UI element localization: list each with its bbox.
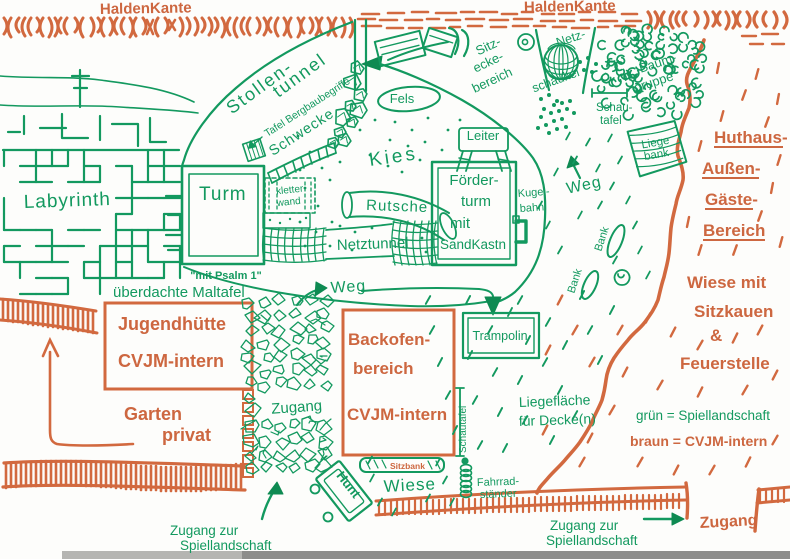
svg-text:HaldenKante: HaldenKante bbox=[524, 0, 616, 16]
svg-text:privat: privat bbox=[162, 425, 211, 445]
svg-text:Spiellandschaft: Spiellandschaft bbox=[546, 533, 638, 548]
svg-text:überdachte Maltafel: überdachte Maltafel bbox=[113, 284, 245, 301]
svg-text:turm: turm bbox=[461, 193, 491, 210]
svg-text:Weg: Weg bbox=[330, 278, 367, 297]
svg-text:Fels: Fels bbox=[390, 91, 415, 106]
svg-text:Kugel-: Kugel- bbox=[517, 186, 550, 200]
svg-text:Liegefläche: Liegefläche bbox=[519, 392, 591, 410]
svg-text:Leiter: Leiter bbox=[467, 128, 500, 143]
svg-text:Netztunnel: Netztunnel bbox=[337, 235, 409, 254]
svg-text:Wiese: Wiese bbox=[383, 474, 436, 496]
svg-text:Spiellandschaft: Spiellandschaft bbox=[180, 538, 272, 553]
svg-text:Sitzbank: Sitzbank bbox=[390, 461, 425, 471]
svg-text:SandKastn: SandKastn bbox=[440, 237, 506, 252]
svg-text:Garten: Garten bbox=[124, 404, 182, 424]
svg-text:Feuerstelle: Feuerstelle bbox=[680, 354, 770, 373]
svg-text:Backofen-: Backofen- bbox=[348, 330, 430, 349]
svg-text:Zugang: Zugang bbox=[271, 397, 323, 418]
svg-text:Jugendhütte: Jugendhütte bbox=[118, 314, 226, 334]
svg-text:Rutsche: Rutsche bbox=[366, 197, 429, 216]
svg-text:Sitzkauen: Sitzkauen bbox=[694, 302, 773, 321]
svg-text:Zugang zur: Zugang zur bbox=[170, 523, 239, 538]
svg-text:Huthaus-: Huthaus- bbox=[714, 128, 788, 147]
svg-text:für Decke(n): für Decke(n) bbox=[519, 410, 597, 429]
svg-text:grün = Spiellandschaft: grün = Spiellandschaft bbox=[636, 408, 770, 423]
svg-text:Schau-: Schau- bbox=[596, 102, 633, 114]
svg-text:HaldenKante: HaldenKante bbox=[100, 0, 192, 18]
svg-text:CVJM-intern: CVJM-intern bbox=[118, 351, 224, 371]
svg-text:Gäste-: Gäste- bbox=[705, 190, 758, 209]
svg-text:&: & bbox=[710, 326, 722, 345]
svg-text:Außen-: Außen- bbox=[702, 159, 761, 178]
svg-text:"mit Psalm 1": "mit Psalm 1" bbox=[190, 270, 262, 282]
svg-text:Schautafel: Schautafel bbox=[458, 406, 469, 453]
svg-text:Förder-: Förder- bbox=[449, 172, 498, 189]
svg-text:Bereich: Bereich bbox=[703, 221, 765, 240]
svg-text:Zugang: Zugang bbox=[699, 512, 758, 532]
svg-text:Zugang zur: Zugang zur bbox=[550, 518, 619, 533]
svg-text:Trampolin: Trampolin bbox=[472, 329, 527, 343]
svg-text:Turm: Turm bbox=[199, 184, 247, 205]
svg-text:bahn: bahn bbox=[519, 201, 544, 215]
svg-text:bereich: bereich bbox=[353, 359, 413, 378]
svg-text:CVJM-intern: CVJM-intern bbox=[347, 405, 447, 424]
svg-text:Wiese mit: Wiese mit bbox=[687, 273, 767, 292]
svg-text:mit: mit bbox=[450, 215, 471, 232]
svg-text:tafel: tafel bbox=[600, 115, 622, 127]
svg-text:Labyrinth: Labyrinth bbox=[23, 189, 111, 213]
svg-text:braun = CVJM-intern: braun = CVJM-intern bbox=[630, 433, 767, 449]
svg-text:ständer: ständer bbox=[480, 488, 517, 501]
